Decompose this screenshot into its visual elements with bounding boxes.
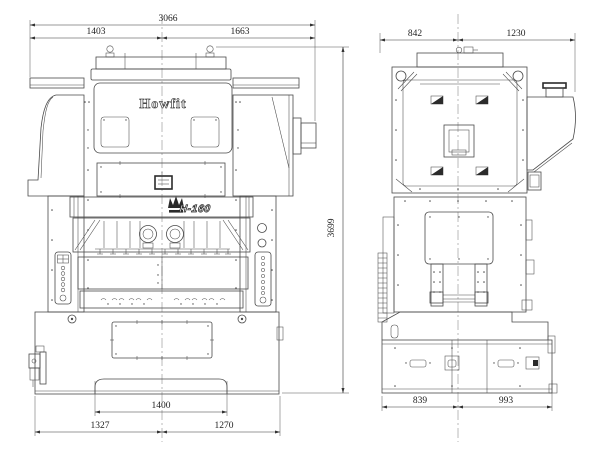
front-bolster xyxy=(80,291,243,308)
base-side-bracket xyxy=(29,346,46,387)
palm-button-top xyxy=(258,224,267,233)
base-handle-slot xyxy=(410,360,426,367)
palm-button-bottom xyxy=(258,239,266,247)
side-slide-guides xyxy=(430,264,488,306)
side-ladder xyxy=(378,253,387,322)
conrod-boss-left xyxy=(140,226,157,243)
front-base xyxy=(29,312,283,394)
front-tslot-row xyxy=(95,249,231,254)
dim-side-top-left: 842 xyxy=(408,29,423,39)
front-mid-panel xyxy=(97,161,225,198)
side-base-slot xyxy=(391,325,398,338)
model-badge-text: H-160 xyxy=(179,203,211,215)
side-base-step xyxy=(548,336,555,353)
drawing-page: 3066 1403 1663 3699 1400 1327 1270 xyxy=(0,0,600,450)
control-strip-right xyxy=(255,252,271,306)
side-view: 842 1230 839 993 xyxy=(378,14,576,442)
front-side-cover-left xyxy=(28,78,84,196)
dim-height: 3699 xyxy=(327,218,337,237)
side-top-fitting xyxy=(456,47,478,53)
base-handle-slot xyxy=(498,360,514,367)
front-slide-ribs xyxy=(73,218,250,252)
front-crown: Howfit xyxy=(84,46,241,153)
crown-window-right xyxy=(191,117,219,147)
nameplate xyxy=(155,172,172,189)
side-mount-box xyxy=(301,123,316,148)
base-arch-opening xyxy=(95,379,227,394)
crown-window-left xyxy=(101,117,129,147)
dim-total-width: 3066 xyxy=(159,14,178,24)
front-leg-right xyxy=(235,169,276,312)
side-dimensions: 842 1230 839 993 xyxy=(380,29,575,411)
front-side-cover-right xyxy=(233,78,316,196)
drawing-canvas: 3066 1403 1663 3699 1400 1327 1270 xyxy=(0,0,600,450)
front-leg-left xyxy=(48,169,89,312)
dim-side-base-right: 993 xyxy=(499,396,514,406)
side-left-rail xyxy=(383,217,394,313)
dim-side-top-right: 1230 xyxy=(507,29,526,39)
brand-logo-text: Howfit xyxy=(139,97,186,112)
side-base xyxy=(382,312,557,393)
side-flywheel-guard xyxy=(527,83,576,190)
side-body-panel xyxy=(425,212,493,264)
dim-opening: 1400 xyxy=(152,401,171,411)
base-right-tab xyxy=(277,327,283,340)
front-slide-face xyxy=(78,257,248,289)
side-base-foot xyxy=(549,384,557,393)
side-mount-plate xyxy=(293,118,301,154)
control-strip-left xyxy=(55,252,71,304)
eyebolt-left-icon xyxy=(106,46,114,57)
dim-right: 1663 xyxy=(231,27,250,37)
conrod-boss-right xyxy=(167,226,184,243)
dim-side-base-left: 839 xyxy=(413,396,428,406)
dim-base-right: 1270 xyxy=(215,421,234,431)
dim-base-left: 1327 xyxy=(91,421,110,431)
side-body xyxy=(378,197,534,322)
dim-left: 1403 xyxy=(87,27,106,37)
side-crown xyxy=(392,53,527,193)
front-logo-band: H-160 xyxy=(70,196,253,217)
hatch-mark xyxy=(431,96,488,175)
eyebolt-right-icon xyxy=(206,46,214,57)
front-view: 3066 1403 1663 3699 1400 1327 1270 xyxy=(28,14,349,442)
